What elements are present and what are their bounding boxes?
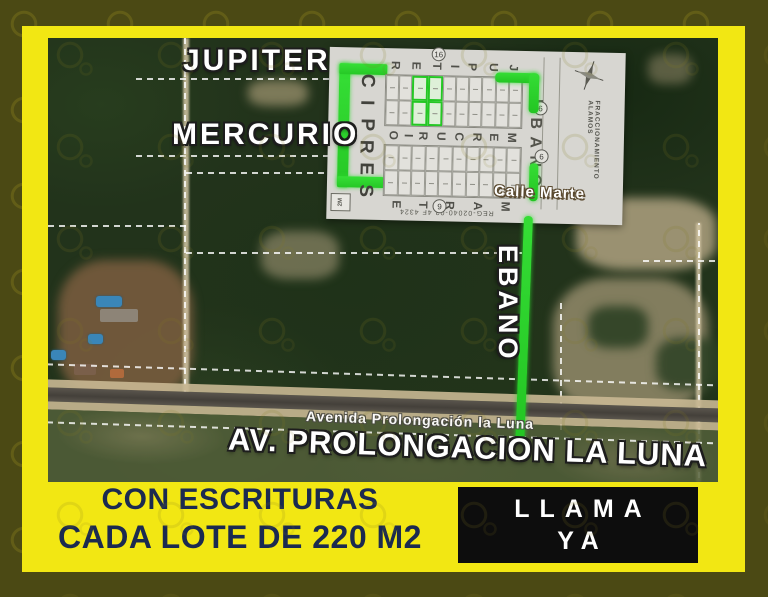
lot-cell — [398, 145, 412, 170]
lot-cell — [452, 147, 466, 172]
vegetation-patch — [588, 306, 648, 348]
highlighted-route-corner — [528, 73, 539, 113]
street-label-ebano: EBANO — [492, 245, 523, 363]
compass-rose-icon — [566, 54, 611, 102]
lot-cell — [493, 147, 507, 172]
property-line — [186, 252, 528, 254]
lot-cell — [397, 170, 411, 195]
call-now-button[interactable]: LLAMA YA — [458, 487, 698, 563]
plat-marker: 6 — [534, 149, 548, 163]
cleared-lot — [648, 54, 692, 84]
plat-legend-text: 2M — [337, 198, 343, 206]
lot-cell — [442, 101, 456, 126]
street-label-calle-marte: Calle Marte — [494, 182, 586, 202]
lot-cell — [398, 100, 412, 125]
headline: CON ESCRITURAS CADA LOTE DE 220 M2 — [30, 483, 450, 556]
lot-cell — [411, 146, 425, 171]
cleared-lot — [248, 80, 308, 106]
property-line — [643, 260, 718, 262]
lot-cell — [425, 146, 439, 171]
lot-cell — [384, 145, 398, 170]
lot-cell-available — [412, 101, 428, 126]
plat-legend-box: 2M — [330, 193, 350, 211]
property-line — [136, 78, 330, 80]
lot-cell — [482, 77, 496, 102]
lot-cell — [479, 147, 493, 172]
street-label-mercurio: MERCURIO — [172, 118, 359, 152]
property-line — [48, 225, 188, 227]
lot-cell-available — [427, 76, 443, 101]
headline-line2: CADA LOTE DE 220 M2 — [30, 519, 450, 556]
lot-cell — [465, 172, 479, 197]
lot-cell — [452, 172, 466, 197]
building-roof — [100, 309, 138, 322]
lot-cell-available — [412, 76, 428, 101]
lot-cell — [385, 100, 399, 125]
street-label-jupiter: JUPITER — [183, 44, 331, 78]
call-now-line2: YA — [548, 527, 607, 556]
swimming-pool — [51, 350, 66, 360]
plat-subdivision-label: FRACCIONAMIENTO ALAMOS — [584, 100, 600, 212]
lot-cell — [507, 148, 521, 173]
lot-cell — [443, 76, 457, 101]
lot-cell — [479, 172, 493, 197]
lot-cell — [456, 77, 470, 102]
lot-cell — [482, 102, 496, 127]
lot-cell — [468, 102, 482, 127]
lot-cell — [399, 75, 413, 100]
satellite-map: CIPRES RETIPUJ OIRUCREM ETRAM EBANO 16 6… — [48, 38, 718, 482]
lot-cell — [466, 147, 480, 172]
swimming-pool — [96, 296, 122, 307]
lot-cell — [469, 77, 483, 102]
property-line — [184, 38, 186, 396]
property-line — [136, 155, 330, 157]
lot-cell — [438, 171, 452, 196]
lot-cell — [439, 146, 453, 171]
swimming-pool — [88, 334, 103, 344]
lot-cell — [455, 102, 469, 127]
cleared-lot — [58, 260, 193, 400]
property-line — [186, 172, 334, 174]
flyer: CIPRES RETIPUJ OIRUCREM ETRAM EBANO 16 6… — [0, 0, 768, 597]
headline-line1: CON ESCRITURAS — [30, 483, 450, 517]
lot-cell — [508, 103, 522, 128]
lot-cell — [384, 170, 398, 195]
lot-cell-available — [427, 101, 443, 126]
lot-cell — [386, 75, 400, 100]
lot-cell — [425, 171, 439, 196]
call-now-line1: LLAMA — [504, 495, 651, 524]
lot-cell — [495, 102, 509, 127]
building-roof — [110, 369, 124, 378]
cleared-lot — [261, 231, 339, 279]
lot-cell — [411, 171, 425, 196]
